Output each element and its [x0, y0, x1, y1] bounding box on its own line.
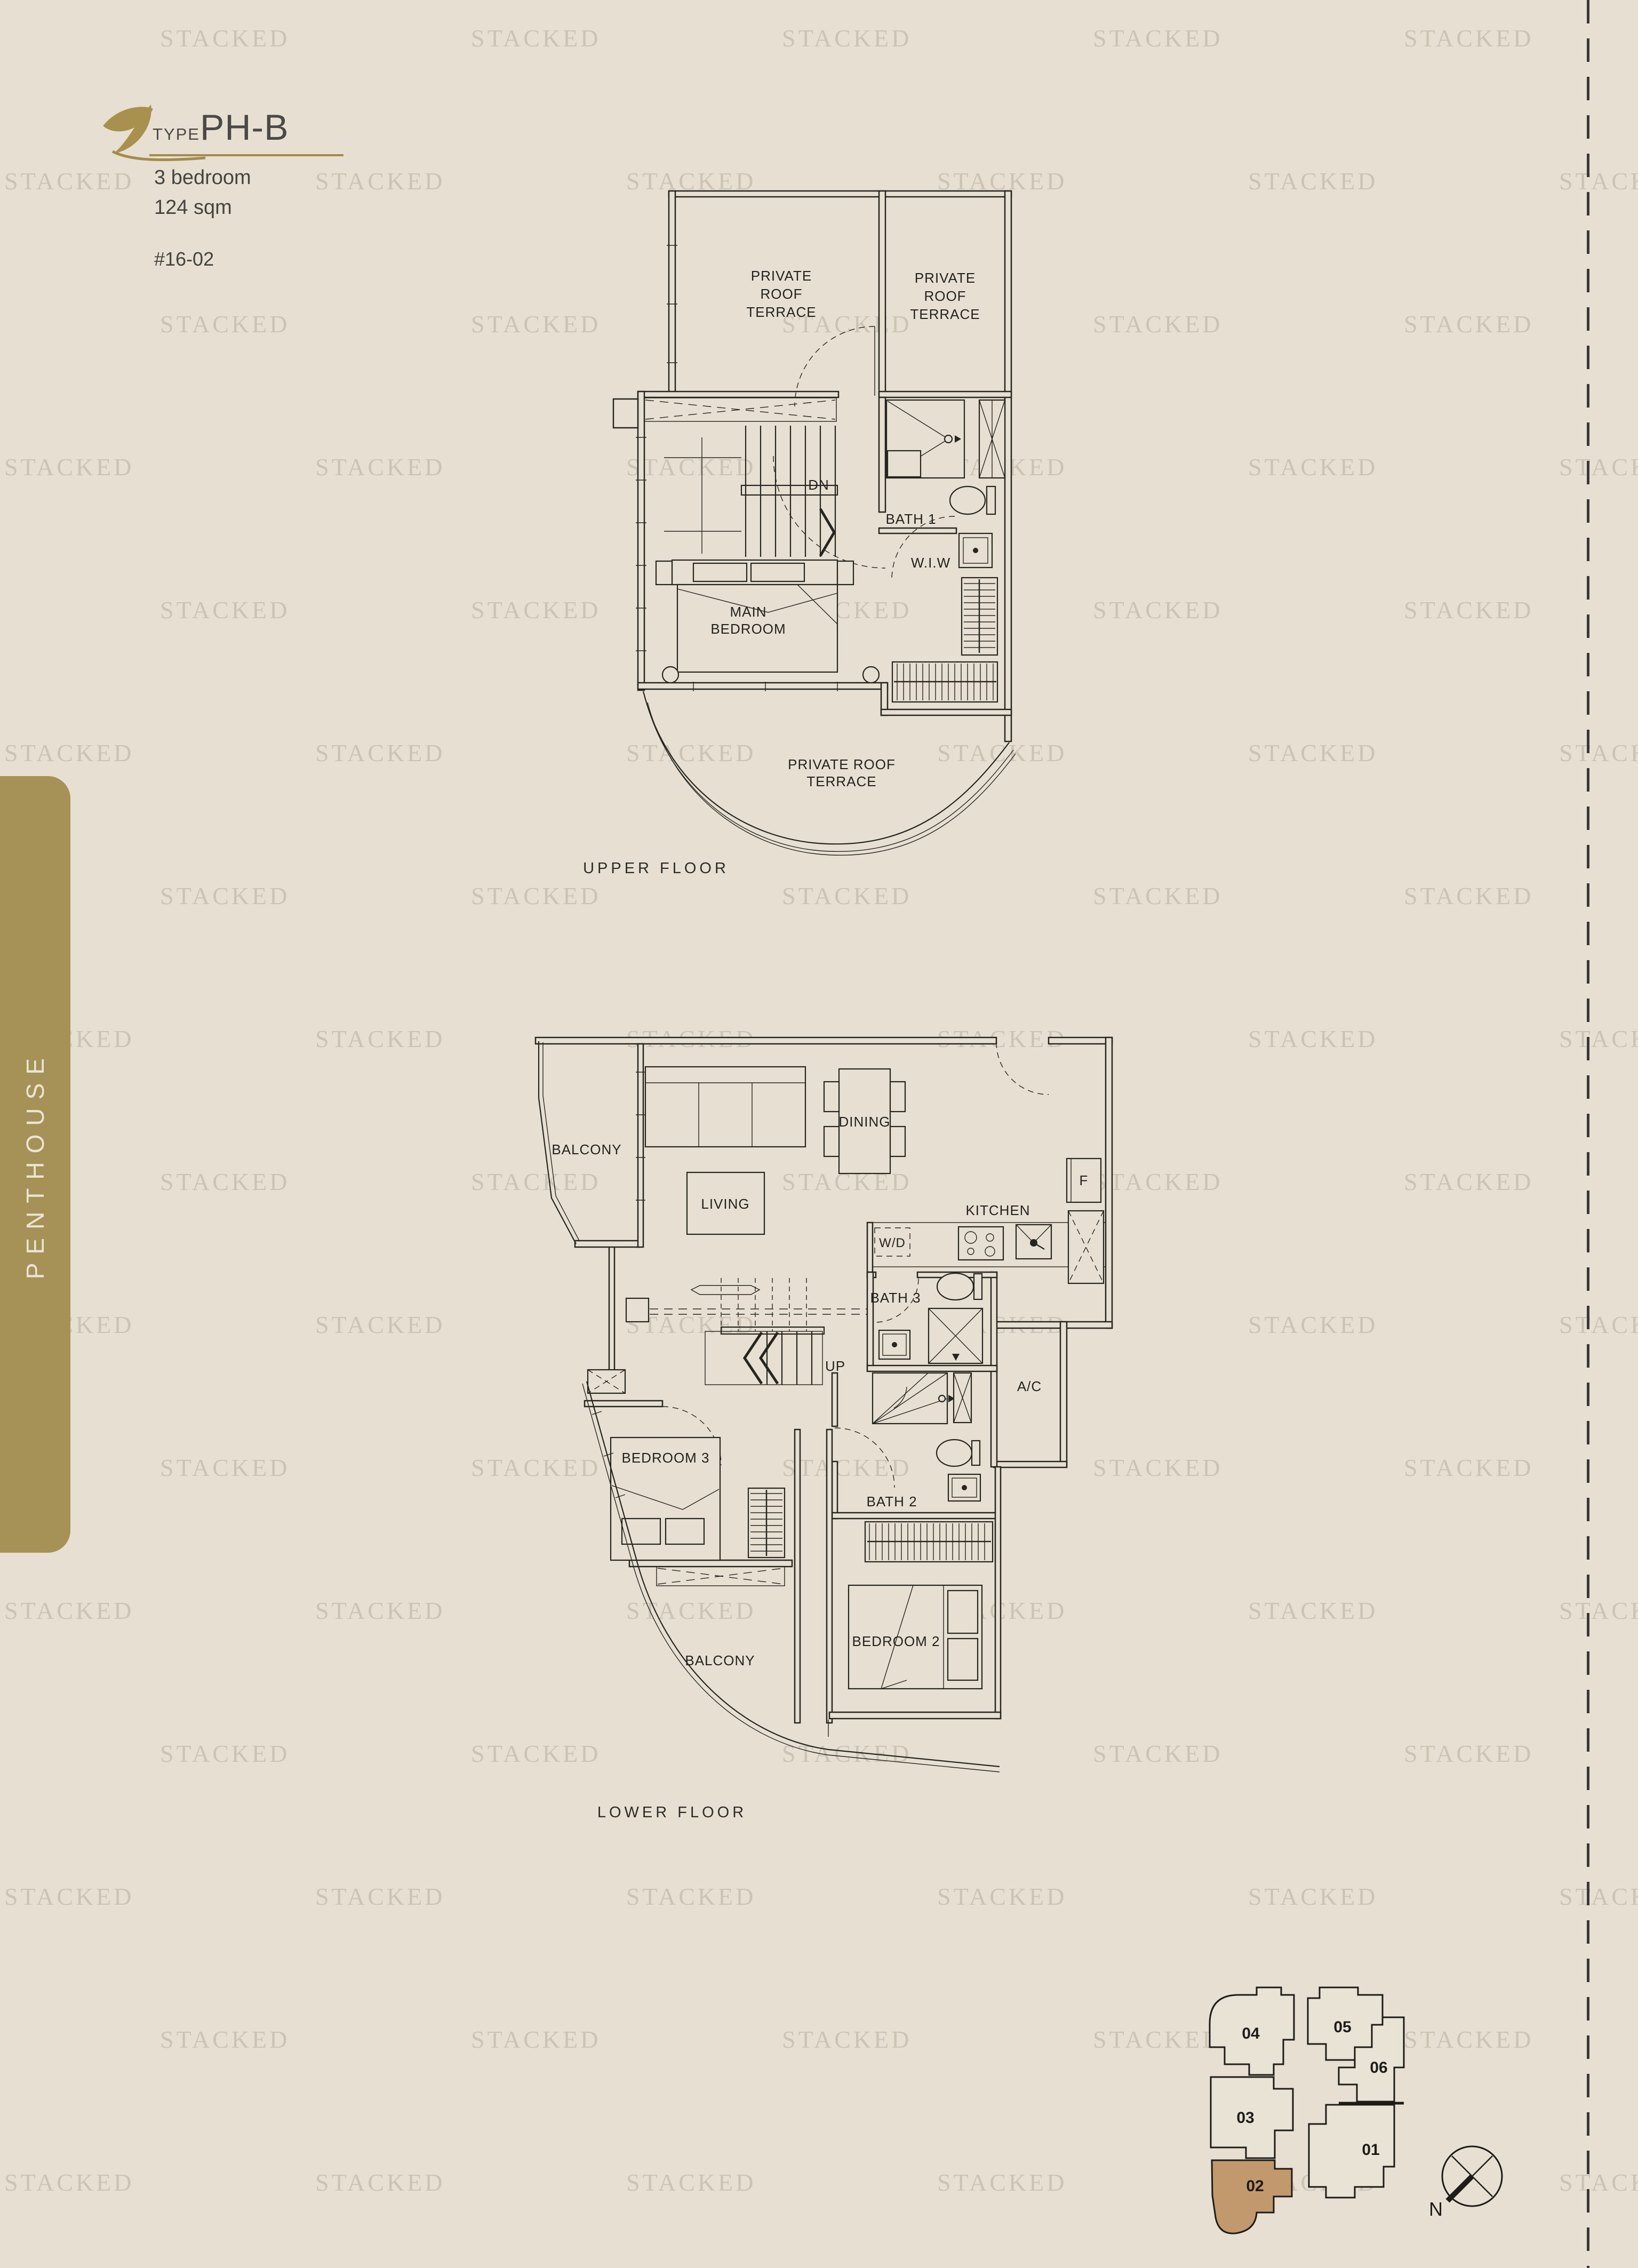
- svg-text:W.I.W: W.I.W: [911, 555, 950, 571]
- toilet-icon: [937, 1440, 972, 1466]
- watermark-text: STACKED: [1559, 1025, 1638, 1053]
- watermark-text: STACKED: [471, 24, 601, 52]
- watermark-text: STACKED: [1404, 1168, 1533, 1196]
- bedroom3-wardrobe: [748, 1488, 785, 1558]
- watermark-text: STACKED: [4, 1596, 134, 1625]
- north-needle: [1448, 2176, 1472, 2201]
- watermark-text: STACKED: [937, 1882, 1067, 1911]
- kitchen-counter: [873, 1159, 1106, 1283]
- svg-text:BATH 1: BATH 1: [885, 511, 936, 527]
- toilet-icon: [937, 1273, 973, 1300]
- stairs-up: [705, 1278, 824, 1385]
- svg-text:BALCONY: BALCONY: [685, 1652, 755, 1668]
- watermark-text: STACKED: [782, 882, 912, 910]
- watermark-text: STACKED: [1248, 167, 1378, 195]
- watermark-text: STACKED: [160, 1454, 290, 1482]
- watermark-text: STACKED: [1093, 882, 1222, 910]
- svg-text:03: 03: [1236, 2109, 1254, 2127]
- watermark-text: STACKED: [1404, 596, 1533, 624]
- watermark-text: STACKED: [1248, 1596, 1378, 1625]
- svg-text:A/C: A/C: [1017, 1378, 1042, 1394]
- svg-text:TERRACE: TERRACE: [806, 773, 876, 789]
- watermark-text: STACKED: [1248, 1311, 1378, 1339]
- watermark-text: STACKED: [471, 2025, 601, 2054]
- entry-door: [996, 1042, 1049, 1095]
- hob-icon: [958, 1227, 1003, 1260]
- watermark-text: STACKED: [937, 2168, 1067, 2197]
- svg-text:TERRACE: TERRACE: [910, 306, 980, 322]
- watermark-text: STACKED: [471, 310, 601, 338]
- watermark-text: STACKED: [1404, 1454, 1533, 1482]
- wiw-wardrobes: [892, 578, 997, 702]
- svg-text:BEDROOM 3: BEDROOM 3: [621, 1450, 709, 1466]
- svg-text:DINING: DINING: [839, 1114, 891, 1130]
- upper-floor-caption: UPPER FLOOR: [555, 860, 757, 877]
- lower-room-labels: BALCONY LIVING DINING KITCHEN W/D F BATH…: [552, 1114, 1088, 1668]
- header-divider-line: [149, 154, 343, 156]
- svg-text:MAIN: MAIN: [730, 604, 767, 620]
- watermark-text: STACKED: [160, 882, 290, 910]
- toilet-icon: [950, 486, 985, 514]
- unit-number: #16-02: [154, 248, 214, 270]
- svg-text:ROOF: ROOF: [924, 288, 966, 304]
- watermark-text: STACKED: [1093, 310, 1222, 338]
- watermark-text: STACKED: [160, 596, 290, 624]
- bath1-fixtures: [886, 400, 1005, 579]
- unit-04-shape: 04: [1210, 1987, 1294, 2075]
- watermark-text: STACKED: [471, 596, 601, 624]
- plan-type-heading: TYPEPH-B: [153, 107, 289, 148]
- dn-label: DN: [808, 477, 829, 493]
- floorplan-page: STACKEDSTACKEDSTACKEDSTACKEDSTACKEDSTACK…: [0, 0, 1638, 2268]
- floor-area: 124 sqm: [154, 196, 232, 219]
- bedroom-count: 3 bedroom: [154, 166, 251, 189]
- pendant-light-icon: [691, 1285, 760, 1295]
- unit-02-shape-highlighted: 02: [1212, 2160, 1292, 2233]
- svg-text:UP: UP: [825, 1358, 845, 1374]
- watermark-text: STACKED: [315, 1596, 445, 1625]
- watermark-text: STACKED: [1093, 596, 1222, 624]
- penthouse-label: PENTHOUSE: [21, 1050, 50, 1279]
- svg-text:W/D: W/D: [879, 1236, 906, 1250]
- svg-text:TERRACE: TERRACE: [746, 304, 816, 320]
- watermark-text: STACKED: [1248, 1882, 1378, 1911]
- watermark-text: STACKED: [1248, 453, 1378, 481]
- upper-window-band: [644, 398, 836, 421]
- svg-text:04: 04: [1242, 2025, 1260, 2042]
- column-circle: [662, 667, 678, 683]
- bedroom3-window-band: [657, 1567, 785, 1586]
- watermark-text: STACKED: [4, 453, 134, 481]
- bath2-fixtures: [873, 1373, 980, 1501]
- svg-text:KITCHEN: KITCHEN: [965, 1202, 1030, 1218]
- svg-text:BATH 3: BATH 3: [870, 1290, 921, 1306]
- watermark-text: STACKED: [1093, 24, 1222, 52]
- watermark-text: STACKED: [315, 739, 445, 767]
- watermark-text: STACKED: [1248, 739, 1378, 767]
- watermark-text: STACKED: [160, 2025, 290, 2054]
- watermark-text: STACKED: [471, 882, 601, 910]
- watermark-text: STACKED: [782, 2025, 912, 2054]
- watermark-text: STACKED: [315, 2168, 445, 2197]
- svg-text:02: 02: [1246, 2177, 1264, 2195]
- watermark-text: STACKED: [160, 310, 290, 338]
- unit-03-shape: 03: [1211, 2077, 1293, 2158]
- watermark-text: STACKED: [315, 453, 445, 481]
- watermark-text: STACKED: [626, 1882, 756, 1911]
- svg-text:ROOF: ROOF: [760, 286, 802, 302]
- svg-text:05: 05: [1333, 2018, 1351, 2036]
- page-edge-dashed-line: [1587, 0, 1589, 2268]
- watermark-text: STACKED: [626, 2168, 756, 2197]
- svg-text:06: 06: [1370, 2059, 1387, 2077]
- watermark-text: STACKED: [1559, 739, 1638, 767]
- penthouse-side-tab: PENTHOUSE: [0, 776, 70, 1553]
- watermark-text: STACKED: [160, 1739, 290, 1768]
- svg-text:PRIVATE ROOF: PRIVATE ROOF: [788, 756, 896, 772]
- lower-floor-plan: BALCONY LIVING DINING KITCHEN W/D F BATH…: [533, 1035, 1117, 1776]
- watermark-text: STACKED: [1559, 1882, 1638, 1911]
- watermark-text: STACKED: [1404, 310, 1533, 338]
- column-circle: [863, 667, 879, 683]
- type-label: TYPE: [153, 125, 200, 144]
- svg-text:F: F: [1080, 1172, 1089, 1188]
- lower-floor-caption: LOWER FLOOR: [571, 1804, 773, 1822]
- watermark-text: STACKED: [1559, 453, 1638, 481]
- watermark-text: STACKED: [1404, 24, 1533, 52]
- unit-key-diagram: 04 05 06 03 01 02 N: [1195, 1963, 1525, 2268]
- type-code: PH-B: [200, 107, 289, 148]
- watermark-text: STACKED: [1559, 1596, 1638, 1625]
- watermark-text: STACKED: [160, 1168, 290, 1196]
- watermark-text: STACKED: [1248, 1025, 1378, 1053]
- watermark-text: STACKED: [1404, 1739, 1533, 1768]
- svg-text:BALCONY: BALCONY: [552, 1141, 621, 1157]
- watermark-text: STACKED: [160, 24, 290, 52]
- svg-text:PRIVATE: PRIVATE: [915, 270, 976, 286]
- watermark-text: STACKED: [1559, 167, 1638, 195]
- upper-floor-plan: DN: [613, 187, 1019, 864]
- bath3-fixtures: [875, 1273, 982, 1363]
- north-label: N: [1429, 2198, 1443, 2220]
- watermark-text: STACKED: [1404, 882, 1533, 910]
- bedroom2-wardrobe: [865, 1522, 993, 1562]
- svg-text:BEDROOM: BEDROOM: [710, 621, 786, 637]
- watermark-text: STACKED: [4, 2168, 134, 2197]
- sofa-icon: [645, 1067, 805, 1147]
- watermark-text: STACKED: [315, 167, 445, 195]
- svg-text:01: 01: [1362, 2141, 1379, 2159]
- watermark-text: STACKED: [1559, 2168, 1638, 2197]
- watermark-text: STACKED: [4, 167, 134, 195]
- watermark-text: STACKED: [315, 1025, 445, 1053]
- overhead-dash-line: [650, 1309, 867, 1314]
- watermark-text: STACKED: [315, 1882, 445, 1911]
- watermark-text: STACKED: [4, 739, 134, 767]
- compass: N: [1429, 2146, 1502, 2220]
- svg-text:BEDROOM 2: BEDROOM 2: [852, 1633, 940, 1649]
- watermark-text: STACKED: [315, 1311, 445, 1339]
- svg-text:PRIVATE: PRIVATE: [751, 268, 812, 284]
- watermark-text: STACKED: [1559, 1311, 1638, 1339]
- column-box: [626, 1298, 649, 1322]
- watermark-text: STACKED: [4, 1882, 134, 1911]
- left-ac-box: [588, 1370, 625, 1393]
- watermark-text: STACKED: [782, 24, 912, 52]
- unit-01-shape: 01: [1309, 2103, 1404, 2198]
- svg-text:BATH 2: BATH 2: [866, 1494, 917, 1510]
- svg-text:LIVING: LIVING: [701, 1196, 749, 1212]
